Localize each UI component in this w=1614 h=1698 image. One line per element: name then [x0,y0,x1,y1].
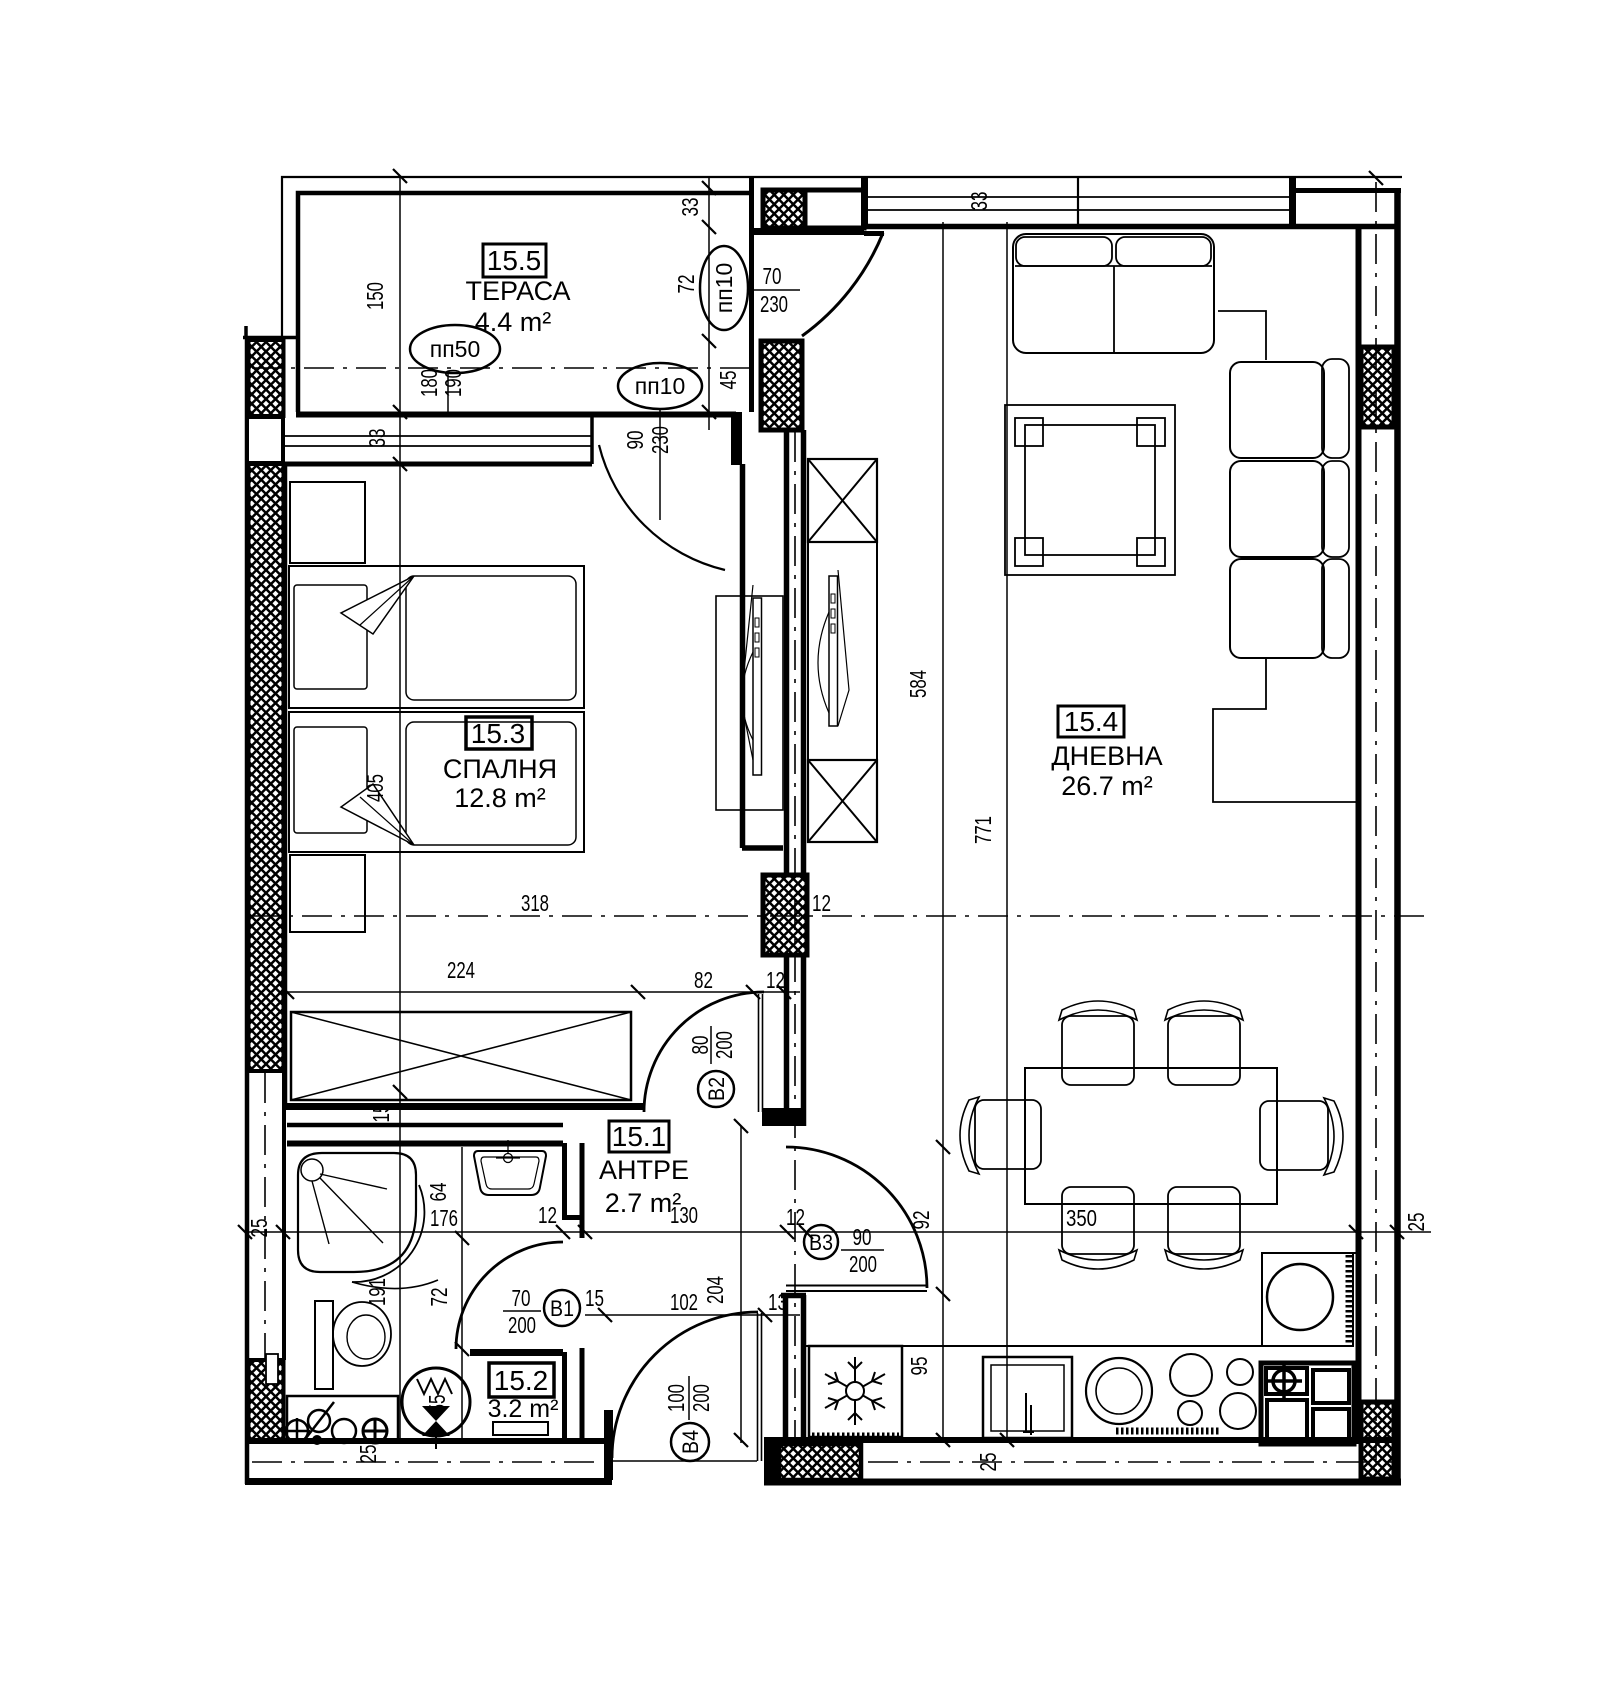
svg-text:90: 90 [853,1224,872,1250]
svg-text:350: 350 [1066,1205,1097,1231]
svg-text:12: 12 [812,890,831,916]
svg-text:200: 200 [508,1312,536,1338]
svg-text:405: 405 [362,774,388,802]
svg-text:15.2: 15.2 [494,1365,549,1396]
svg-text:771: 771 [970,816,996,844]
svg-text:33: 33 [966,192,992,211]
svg-text:72: 72 [426,1288,452,1307]
svg-text:ДНЕВНА: ДНЕВНА [1051,741,1162,771]
svg-text:3.2 m²: 3.2 m² [488,1395,559,1423]
svg-text:92: 92 [908,1211,934,1230]
svg-text:B2: B2 [704,1077,729,1101]
svg-text:45: 45 [715,371,741,390]
svg-text:25: 25 [975,1453,1001,1472]
svg-text:15: 15 [585,1285,604,1311]
svg-text:B4: B4 [678,1430,703,1454]
svg-text:100: 100 [663,1384,689,1412]
svg-text:12: 12 [786,1204,805,1230]
svg-text:90: 90 [622,431,648,450]
svg-text:150: 150 [362,282,388,310]
svg-text:ТЕРАСА: ТЕРАСА [465,276,570,306]
svg-text:СПАЛНЯ: СПАЛНЯ [443,754,557,784]
svg-text:пп10: пп10 [711,263,737,314]
svg-text:13: 13 [768,1289,787,1315]
svg-text:55: 55 [424,1395,450,1414]
svg-text:191: 191 [364,1278,390,1306]
svg-text:12.8 m²: 12.8 m² [454,783,546,813]
svg-text:130: 130 [670,1202,698,1228]
svg-text:200: 200 [688,1384,714,1412]
svg-text:25: 25 [246,1219,272,1238]
svg-text:15.3: 15.3 [471,718,526,749]
svg-text:70: 70 [763,263,782,289]
svg-text:12: 12 [538,1202,557,1228]
svg-text:15.4: 15.4 [1064,706,1119,737]
svg-text:318: 318 [521,890,549,916]
svg-text:64: 64 [425,1182,451,1201]
svg-text:АНТРЕ: АНТРЕ [599,1155,689,1185]
svg-text:200: 200 [711,1031,737,1059]
svg-text:200: 200 [849,1251,877,1277]
svg-text:26.7 m²: 26.7 m² [1061,771,1153,801]
svg-text:224: 224 [447,957,475,983]
svg-text:B3: B3 [809,1230,833,1255]
svg-text:230: 230 [760,291,788,317]
svg-text:102: 102 [670,1289,698,1315]
svg-text:пп10: пп10 [635,373,686,399]
svg-text:95: 95 [906,1357,932,1376]
svg-text:180: 180 [416,369,442,397]
svg-text:15.5: 15.5 [487,245,542,276]
svg-text:230: 230 [647,426,673,454]
svg-text:176: 176 [430,1205,458,1231]
svg-text:25: 25 [1403,1213,1429,1232]
svg-text:70: 70 [512,1285,531,1311]
svg-text:33: 33 [364,429,390,448]
svg-text:72: 72 [673,275,699,294]
svg-text:пп50: пп50 [430,336,481,362]
svg-text:584: 584 [905,670,931,698]
svg-text:25: 25 [355,1445,381,1464]
svg-text:80: 80 [687,1036,713,1055]
svg-text:B1: B1 [550,1296,574,1321]
svg-text:33: 33 [677,198,703,217]
svg-text:15.1: 15.1 [612,1121,667,1152]
svg-text:12: 12 [766,967,785,993]
svg-text:204: 204 [702,1276,728,1304]
svg-text:82: 82 [694,967,713,993]
svg-text:15: 15 [368,1104,394,1123]
